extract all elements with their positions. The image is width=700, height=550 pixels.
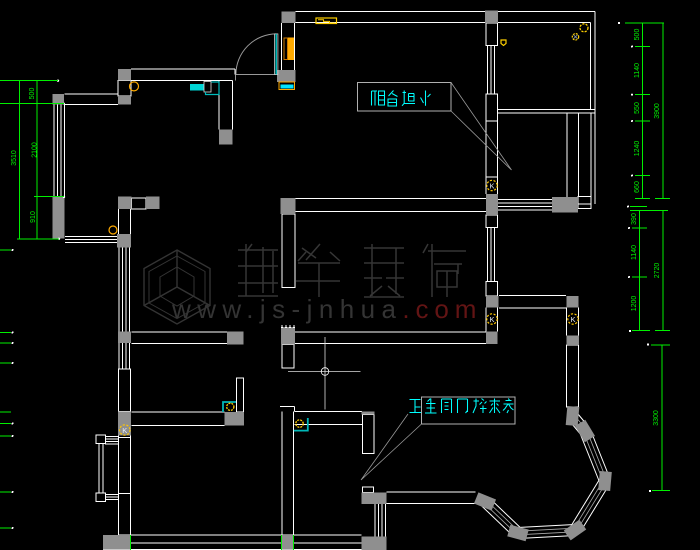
svg-text:2720: 2720 [654,263,661,279]
svg-text:3510: 3510 [11,150,18,166]
svg-text:K: K [489,182,494,191]
svg-text:K: K [570,315,575,324]
svg-text:3300: 3300 [653,410,660,426]
svg-text:1200: 1200 [631,296,638,312]
svg-text:3900: 3900 [654,103,661,119]
svg-text:910: 910 [30,211,37,223]
svg-text:2100: 2100 [32,142,39,158]
svg-text:1240: 1240 [634,141,641,157]
svg-text:390: 390 [631,213,638,225]
svg-text:660: 660 [634,181,641,193]
svg-text:500: 500 [634,29,641,41]
svg-text:1140: 1140 [634,63,641,78]
svg-text:500: 500 [29,88,36,100]
svg-text:K: K [489,315,494,324]
svg-text:1140: 1140 [631,245,638,260]
svg-text:550: 550 [634,102,641,114]
svg-text:K: K [122,426,127,435]
